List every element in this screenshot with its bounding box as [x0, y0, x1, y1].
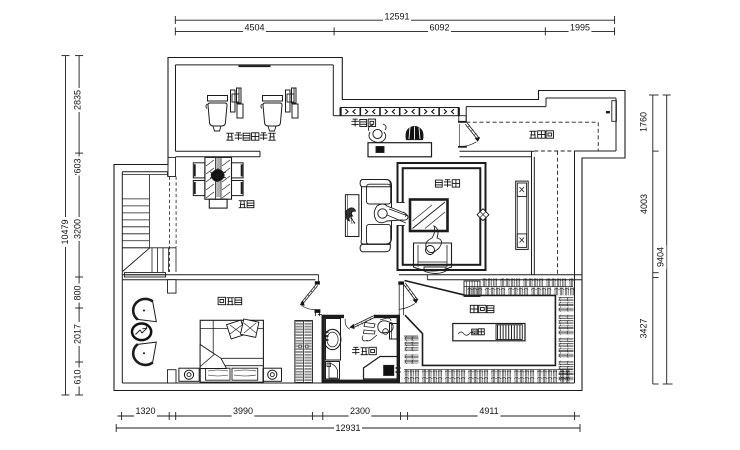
svg-text:2017: 2017	[73, 324, 83, 344]
svg-text:3427: 3427	[639, 318, 649, 338]
svg-text:6092: 6092	[429, 23, 449, 33]
svg-text:603: 603	[73, 158, 83, 173]
svg-text:800: 800	[73, 285, 83, 300]
svg-text:610: 610	[73, 369, 83, 384]
svg-text:4504: 4504	[244, 23, 264, 33]
svg-text:1320: 1320	[135, 406, 155, 416]
svg-text:2835: 2835	[73, 90, 83, 110]
svg-text:2300: 2300	[350, 406, 370, 416]
svg-text:1760: 1760	[639, 112, 649, 132]
svg-text:12591: 12591	[384, 12, 409, 22]
svg-text:3990: 3990	[233, 406, 253, 416]
svg-text:3200: 3200	[73, 219, 83, 239]
svg-text:1995: 1995	[570, 23, 590, 33]
svg-text:4003: 4003	[639, 194, 649, 214]
svg-text:4911: 4911	[479, 406, 498, 416]
svg-text:9404: 9404	[656, 247, 666, 267]
svg-text:10479: 10479	[60, 219, 70, 244]
svg-text:12931: 12931	[335, 423, 360, 433]
